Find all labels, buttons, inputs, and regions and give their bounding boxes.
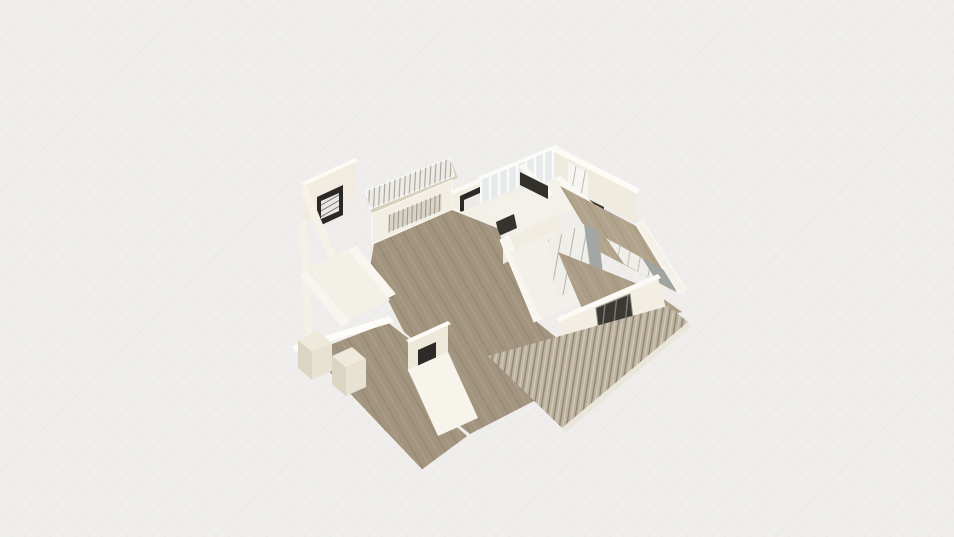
floorplan-viewport[interactable] <box>0 0 954 537</box>
floorplan-3d-render <box>0 0 954 537</box>
